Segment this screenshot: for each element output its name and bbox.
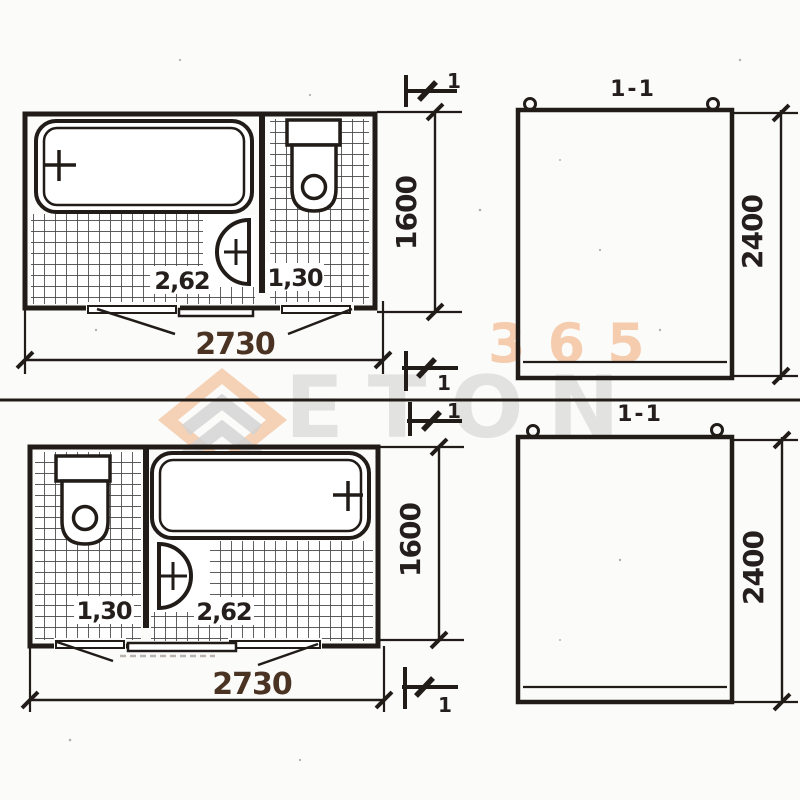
toilet-cistern — [56, 456, 110, 481]
door-threshold — [282, 306, 350, 313]
speckle — [309, 94, 311, 96]
speckle — [559, 159, 561, 161]
scanned-drawing-sheet: ETON 365 — [0, 0, 800, 800]
speckle — [659, 329, 661, 331]
speckle — [179, 59, 181, 61]
speckle — [559, 639, 561, 641]
section-mark-number: 1 — [437, 371, 451, 395]
speckle — [739, 59, 741, 61]
watermark-365-text: 365 — [488, 312, 667, 375]
wc-area-label: 1,30 — [267, 264, 323, 292]
toilet-cistern — [287, 120, 340, 145]
speckle — [299, 759, 301, 761]
toilet-drain — [74, 507, 97, 530]
toilet-icon — [56, 456, 110, 544]
speckle — [599, 249, 601, 251]
bathtub-icon — [152, 453, 369, 538]
door-leaf — [179, 309, 253, 316]
bath-area-label: 2,62 — [154, 267, 209, 295]
speckle — [619, 559, 621, 561]
toilet-drain — [303, 176, 326, 199]
speckle — [479, 209, 482, 212]
bath-area-label: 2,62 — [196, 598, 251, 626]
section-mark-number: 1 — [438, 693, 452, 717]
height-dimension-label: 2400 — [736, 195, 769, 269]
section-title: 1-1 — [610, 77, 656, 102]
section-mark-number: 1 — [447, 69, 461, 93]
sanitary-cabin-drawing: ETON 365 — [0, 0, 800, 800]
width-dimension-label: 2730 — [212, 667, 292, 702]
width-dimension-label: 2730 — [195, 327, 275, 362]
section-title: 1-1 — [617, 402, 663, 427]
depth-dimension-label: 1600 — [390, 176, 423, 250]
toilet-icon — [287, 120, 340, 211]
depth-dimension-label: 1600 — [394, 503, 427, 577]
top-plan-view: 2,62 1,30 — [25, 114, 375, 334]
bathtub-icon — [36, 121, 252, 212]
door-leaf — [128, 643, 236, 651]
section-mark-number: 1 — [447, 399, 461, 423]
speckle — [95, 329, 97, 331]
bottom-plan-view: 1,30 2,62 — [30, 447, 378, 665]
height-dimension-label: 2400 — [737, 531, 770, 605]
tiled-floor — [210, 541, 373, 641]
wc-area-label: 1,30 — [76, 597, 132, 625]
speckle — [69, 739, 72, 742]
